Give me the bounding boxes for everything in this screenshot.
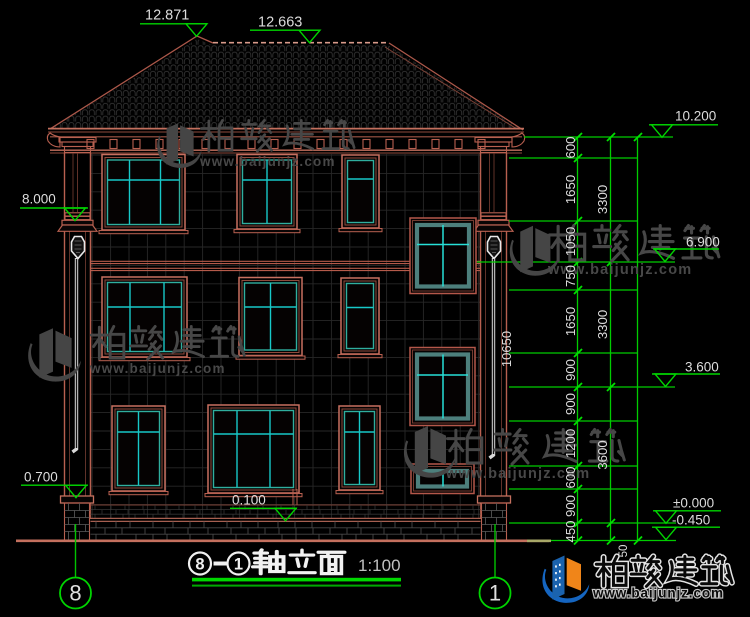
svg-text:8: 8 <box>195 556 204 574</box>
svg-text:3.600: 3.600 <box>685 360 719 375</box>
svg-text:0.100: 0.100 <box>232 493 266 508</box>
svg-text:1650: 1650 <box>563 175 578 204</box>
svg-text:www.baijunjz.com: www.baijunjz.com <box>89 361 226 376</box>
svg-text:600: 600 <box>563 466 578 488</box>
svg-text:1: 1 <box>234 556 243 574</box>
svg-text:www.baijunjz.com: www.baijunjz.com <box>592 586 724 601</box>
svg-text:900: 900 <box>563 359 578 381</box>
svg-text:8.000: 8.000 <box>22 192 56 207</box>
svg-text:10650: 10650 <box>499 331 514 367</box>
svg-text:1: 1 <box>489 581 501 606</box>
svg-text:3300: 3300 <box>595 185 610 214</box>
svg-text:900: 900 <box>563 495 578 517</box>
svg-text:8: 8 <box>69 581 81 606</box>
svg-text:1200: 1200 <box>563 429 578 458</box>
svg-text:450: 450 <box>563 520 578 542</box>
svg-text:750: 750 <box>563 265 578 287</box>
svg-text:3600: 3600 <box>595 440 610 469</box>
svg-text:1050: 1050 <box>563 227 578 256</box>
svg-text:±0.000: ±0.000 <box>673 496 714 511</box>
svg-text:www.baijunjz.com: www.baijunjz.com <box>199 154 336 169</box>
svg-text:900: 900 <box>563 393 578 415</box>
svg-text:1:100: 1:100 <box>358 556 401 575</box>
svg-text:600: 600 <box>563 136 578 158</box>
svg-text:10.200: 10.200 <box>675 109 716 124</box>
svg-text:1650: 1650 <box>563 307 578 336</box>
svg-text:6.900: 6.900 <box>686 235 720 250</box>
svg-text:12.871: 12.871 <box>145 8 189 24</box>
svg-text:0.700: 0.700 <box>24 470 58 485</box>
svg-text:-0.450: -0.450 <box>672 513 710 528</box>
svg-text:50: 50 <box>618 545 630 558</box>
svg-text:12.663: 12.663 <box>258 15 302 31</box>
svg-text:3300: 3300 <box>595 310 610 339</box>
